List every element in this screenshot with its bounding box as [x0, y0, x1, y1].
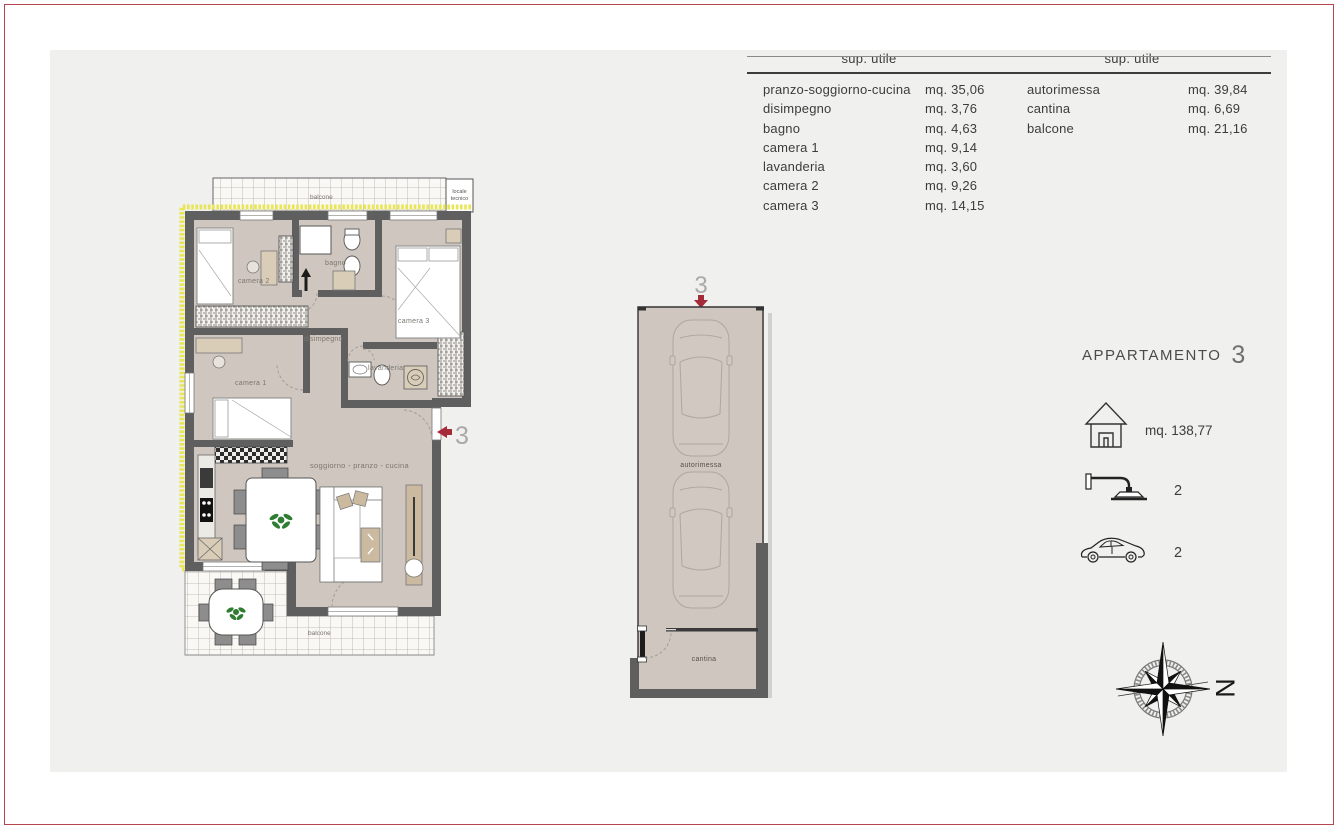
- shower-icon: [1084, 472, 1156, 508]
- garage-shadow: [768, 313, 772, 698]
- apartment-unit-number: 3: [455, 422, 469, 450]
- camera2-label: camera 2: [238, 278, 270, 285]
- balcone-top-label: balcone: [310, 194, 333, 201]
- house-icon: [1082, 400, 1130, 450]
- north-label: N: [1210, 678, 1240, 698]
- lavanderia-label: lavanderia: [368, 365, 403, 372]
- disimpegno-label: disimpegno: [304, 336, 343, 343]
- cantina-label: cantina: [692, 656, 717, 663]
- car-top-view: [670, 472, 732, 608]
- apartment-title: APPARTAMENTO3: [1082, 341, 1245, 370]
- wardrobe: [196, 306, 308, 327]
- svg-text:tecnico: tecnico: [451, 196, 468, 202]
- shower-count-value: 2: [1174, 483, 1182, 499]
- closet: [438, 332, 464, 396]
- compass-rose: N: [1098, 630, 1258, 755]
- camera3-label: camera 3: [398, 318, 430, 325]
- autorimessa-label: autorimessa: [680, 462, 721, 469]
- soggiorno-label: soggiorno - pranzo - cucina: [310, 461, 410, 470]
- locale-tecnico-label: locale: [452, 189, 466, 195]
- car-icon: [1078, 534, 1148, 566]
- camera1-label: camera 1: [235, 380, 267, 387]
- plan-sheet: sup. utile sup. utile pranzo-soggiorno-c…: [0, 0, 1338, 829]
- bagno-label: bagno: [325, 260, 346, 267]
- apartment-entrance-marker: 3: [437, 422, 469, 450]
- apartment-plan: balcone locale tecnico balcone: [182, 178, 473, 655]
- car-count-value: 2: [1174, 545, 1182, 561]
- apartment-title-number: 3: [1231, 341, 1245, 369]
- garage-unit-number: 3: [694, 272, 707, 299]
- compass-star: [1116, 642, 1210, 736]
- garage-plan: 3 auto: [630, 272, 772, 698]
- furniture-dining: [234, 468, 328, 570]
- furniture-sofa: [320, 485, 423, 585]
- car-top-view: [670, 320, 732, 456]
- total-area-value: mq. 138,77: [1145, 423, 1213, 438]
- cantina-door: [640, 630, 645, 658]
- balcone-bottom-label: balcone: [308, 630, 331, 637]
